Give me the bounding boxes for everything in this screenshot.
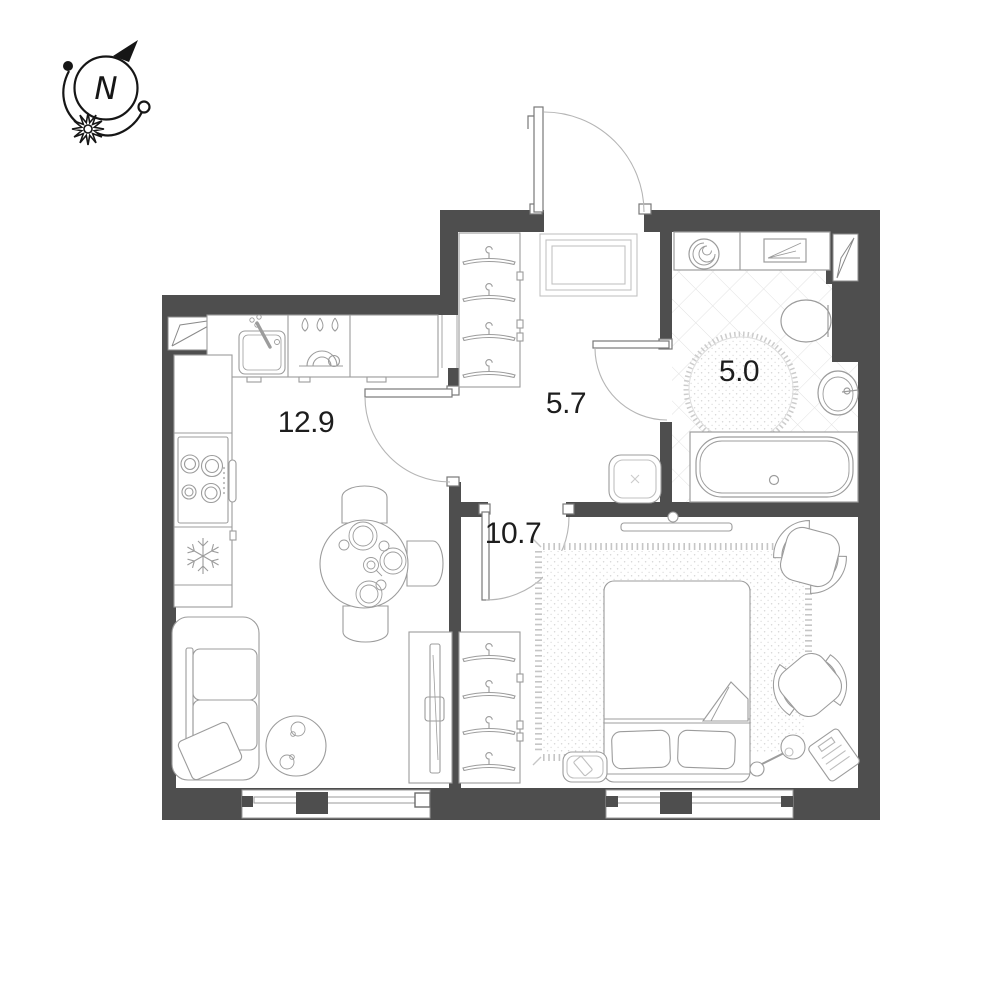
bathroom-pipe-box — [832, 284, 858, 362]
entrance-jamb-right — [639, 204, 651, 214]
living-door-leaf — [365, 389, 452, 397]
window-living-tab — [242, 796, 253, 807]
wardrobe-knob — [517, 674, 523, 682]
window-bedroom-tab-left — [606, 796, 618, 807]
wardrobe-knob — [517, 733, 523, 741]
doormat-icon — [540, 234, 637, 296]
wall-bedroom-bathroom — [566, 502, 858, 517]
doormat-mid — [546, 240, 631, 290]
window-bedroom-mullion — [660, 792, 692, 814]
floor-lamp-stem — [762, 752, 786, 764]
wall-top-left-of-entrance — [440, 210, 544, 232]
cabinet-handle — [367, 377, 386, 382]
compass-icon: N — [63, 40, 150, 145]
window-bedroom-tab-right — [781, 796, 793, 807]
window-living-recess — [242, 790, 430, 818]
doormat-inner — [552, 246, 625, 284]
window-living-mullion — [296, 792, 328, 814]
compass-open-dot — [139, 102, 150, 113]
wall-right — [858, 232, 880, 820]
window-living-glazing — [254, 797, 420, 803]
living-door-swing — [365, 397, 450, 482]
wall-kitchen-top — [162, 295, 440, 315]
compass-north-letter: N — [94, 71, 117, 107]
wardrobe-knob — [517, 721, 523, 729]
floor-lamp-base — [750, 762, 764, 776]
room-label-hallway: 5.7 — [546, 387, 586, 421]
toilet-icon — [781, 300, 831, 342]
stove-handle — [229, 460, 236, 502]
wall-top-right-of-entrance — [644, 210, 880, 232]
bathroom-door-swing — [595, 348, 667, 420]
tv-icon — [430, 644, 440, 773]
fridge-handle — [230, 531, 236, 540]
wardrobe-knob — [517, 333, 523, 341]
window-living-handle — [415, 793, 430, 807]
room-label-kitchen-living: 12.9 — [278, 406, 334, 440]
wardrobe-knob — [517, 320, 523, 328]
coffee-table-icon — [266, 716, 326, 776]
floor-plan: N 12.9 5.7 5.0 10.7 — [0, 0, 1000, 1000]
wall-sink-icon — [818, 371, 858, 415]
cabinet-handle — [299, 377, 310, 382]
pillow-icon — [677, 730, 735, 769]
sunburst-center — [84, 125, 92, 133]
scale-icon — [807, 727, 861, 782]
dining-chair-top — [342, 486, 387, 523]
entrance-door-leaf — [534, 107, 543, 212]
cabinet-handle — [247, 377, 261, 382]
kitchen-living-items — [172, 315, 452, 783]
kitchen-sink-icon — [239, 331, 285, 374]
round-rug-icon — [689, 337, 793, 441]
compass-arc-left — [63, 71, 80, 125]
wardrobe-knob — [517, 272, 523, 280]
compass-filled-dot — [63, 61, 73, 71]
hallway-items — [442, 233, 661, 503]
floor-plan-drawing: N — [0, 0, 1000, 1000]
bathroom-door-leaf — [593, 341, 669, 348]
room-label-bedroom: 10.7 — [485, 517, 541, 551]
dining-chair-right — [407, 541, 443, 586]
floor-lamp-icon — [781, 735, 805, 759]
tv-icon — [621, 523, 732, 531]
wall-bathroom-left-upper — [660, 232, 672, 347]
window-bedroom-glazing — [617, 797, 783, 803]
entrance-door-swing — [544, 112, 644, 212]
dining-chair-bottom — [343, 606, 388, 642]
wall-kitchen-hall — [440, 232, 458, 315]
hall-niche-lines — [442, 315, 457, 368]
bathtub-icon — [690, 432, 858, 502]
pillow-icon — [611, 730, 670, 769]
entrance-door-handle — [528, 116, 534, 129]
bedroom-door-jamb-right — [563, 504, 574, 514]
wall-bathroom-left-lower — [660, 422, 672, 502]
tv-mount — [668, 512, 678, 522]
room-label-bathroom: 5.0 — [719, 355, 759, 389]
window-bedroom-recess — [606, 790, 793, 818]
